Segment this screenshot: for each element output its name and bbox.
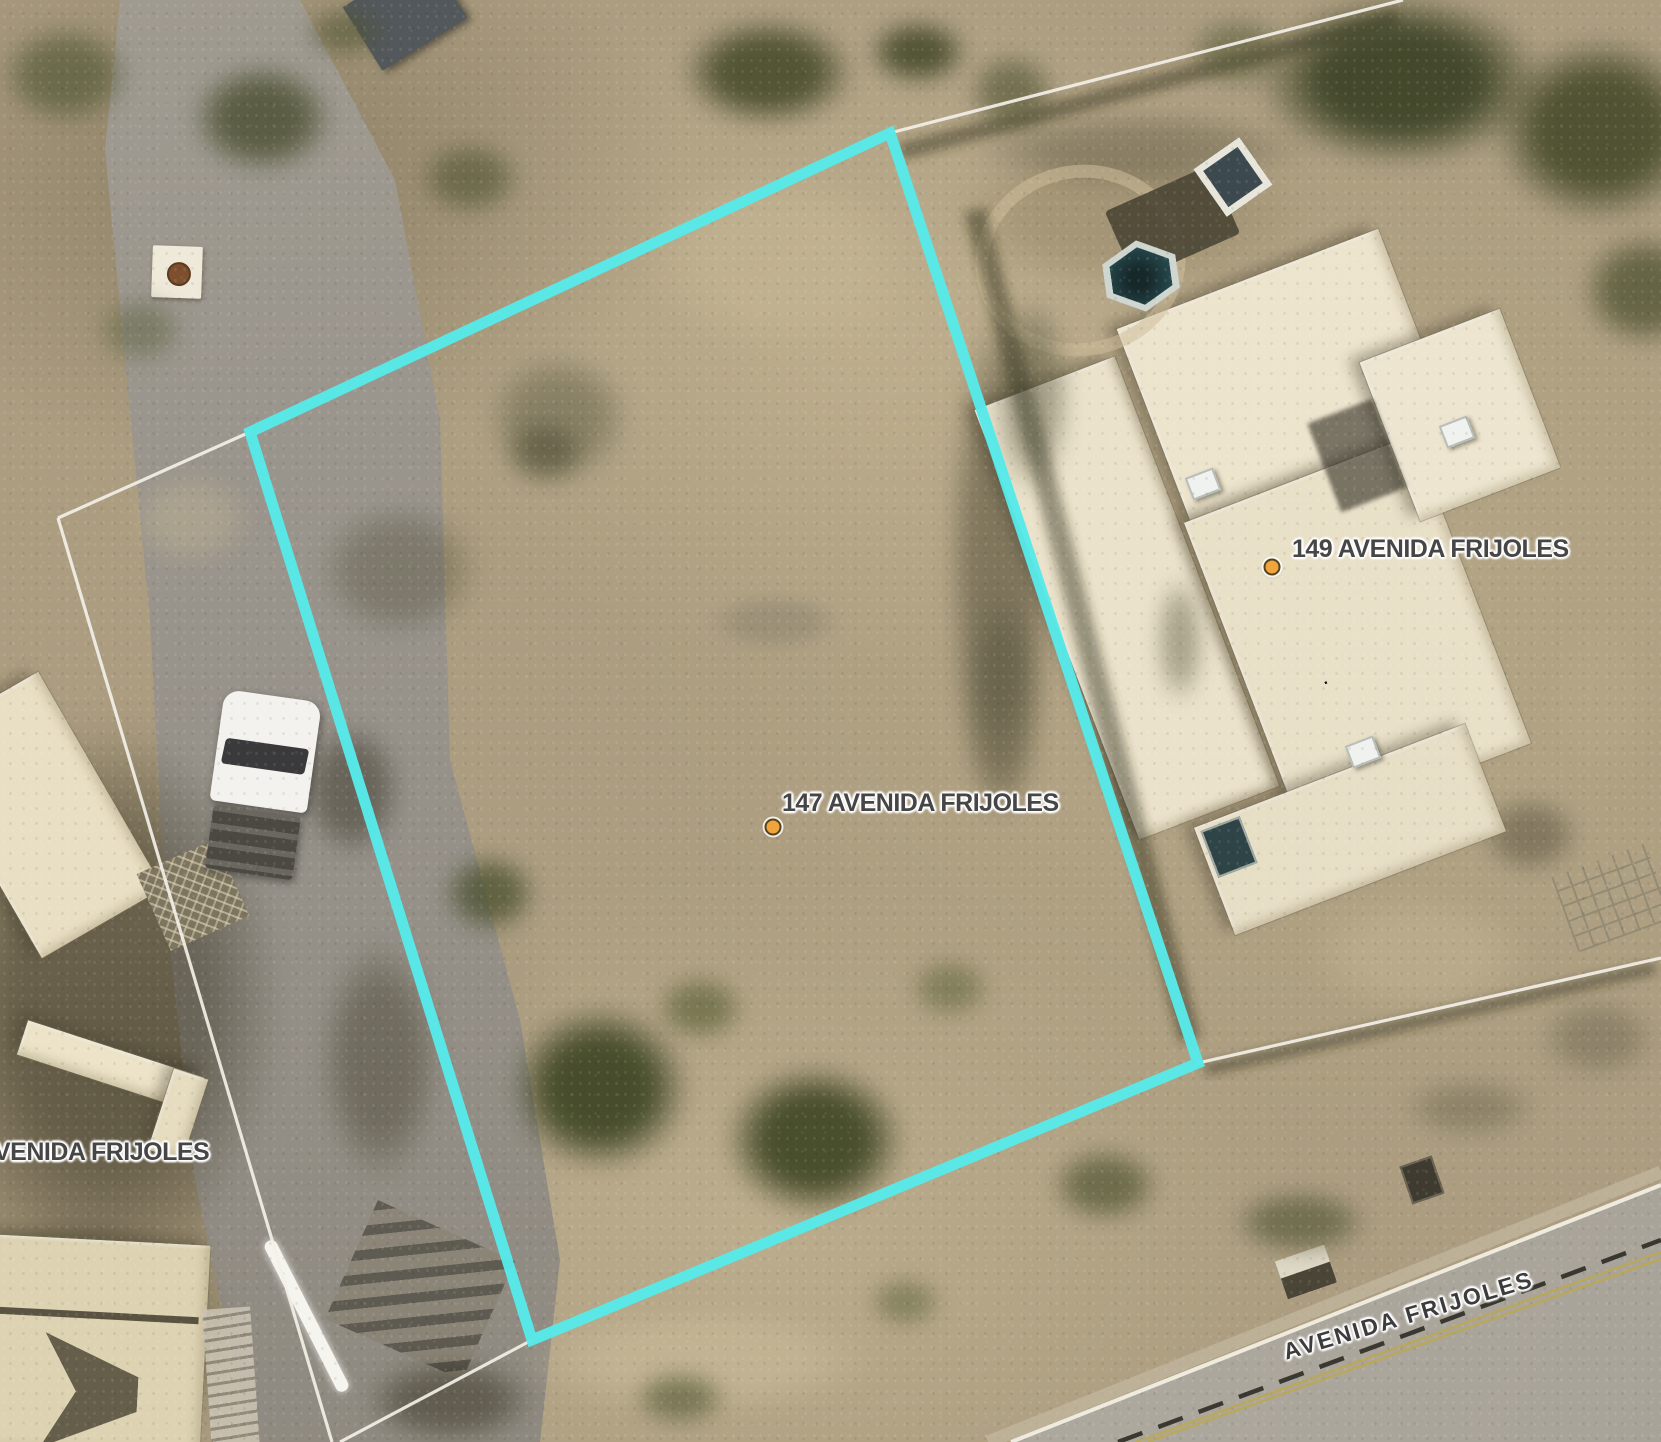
address-point-marker — [765, 819, 782, 836]
address-point-marker — [1264, 559, 1281, 576]
aerial-map-canvas[interactable]: 147 AVENIDA FRIJOLES 149 AVENIDA FRIJOLE… — [0, 0, 1661, 1442]
address-point-layer — [0, 0, 1661, 1442]
